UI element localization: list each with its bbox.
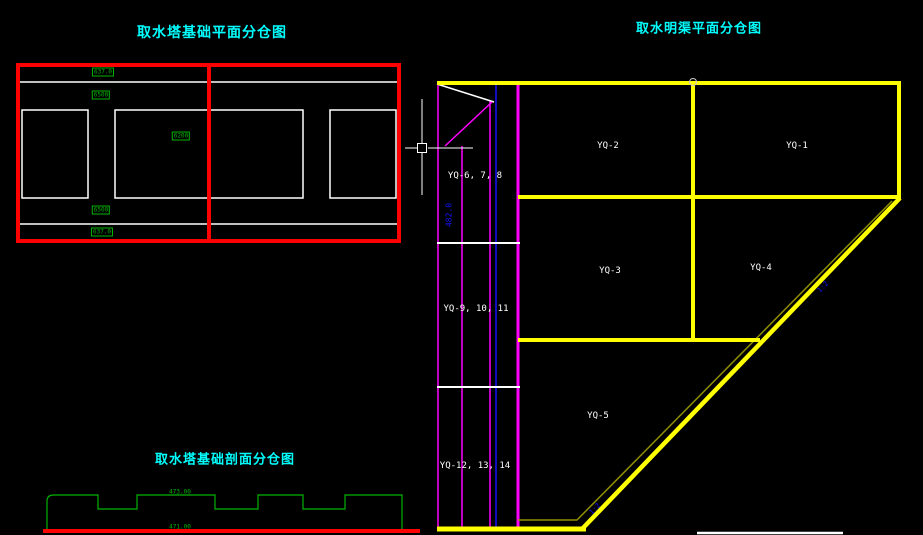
section-outline — [47, 495, 402, 531]
compartment-label-yq678: YQ-6, 7, 8 — [448, 171, 502, 181]
crosshair-pickbox — [418, 144, 427, 153]
section-top-elevation-label: 473.00 — [169, 489, 191, 496]
channel-inner-slope-line — [518, 201, 892, 520]
compartment-label-yq1: YQ-1 — [786, 141, 808, 151]
foundation-opening-right — [330, 110, 396, 198]
foundation-opening-left — [22, 110, 88, 198]
compartment-label-yq2: YQ-2 — [597, 141, 619, 151]
channel-plan-title: 取水明渠平面分仓图 — [636, 18, 762, 37]
strip-elevation-label: 482.0 — [445, 203, 454, 227]
compartment-label-yq121314: YQ-12, 13, 14 — [440, 461, 510, 471]
foundation-dim-label-3: 6200 — [172, 132, 190, 141]
foundation-section-title: 取水塔基础剖面分仓图 — [155, 449, 295, 468]
foundation-dim-label-1: 637.0 — [92, 68, 114, 77]
foundation-dim-label-5: 637.0 — [91, 228, 113, 237]
section-linework — [43, 495, 420, 531]
compartment-label-yq3: YQ-3 — [599, 266, 621, 276]
foundation-dim-label-4: 6500 — [92, 206, 110, 215]
drawing-linework — [0, 0, 923, 535]
compartment-label-yq4: YQ-4 — [750, 263, 772, 273]
strip-white-diagonal — [437, 84, 494, 102]
compartment-label-yq5: YQ-5 — [587, 411, 609, 421]
compartment-label-yq91011: YQ-9, 10, 11 — [443, 304, 508, 314]
cad-drawing-canvas[interactable]: 取水塔基础平面分仓图 取水明渠平面分仓图 取水塔基础剖面分仓图 YQ-1 YQ-… — [0, 0, 923, 535]
section-bottom-elevation-label: 471.00 — [169, 524, 191, 531]
foundation-dim-label-2: 6500 — [92, 91, 110, 100]
channel-slope-edge — [583, 198, 900, 528]
foundation-plan-title: 取水塔基础平面分仓图 — [137, 22, 287, 42]
strip-magenta-diagonal — [445, 102, 492, 146]
foundation-plan-linework — [18, 63, 399, 243]
